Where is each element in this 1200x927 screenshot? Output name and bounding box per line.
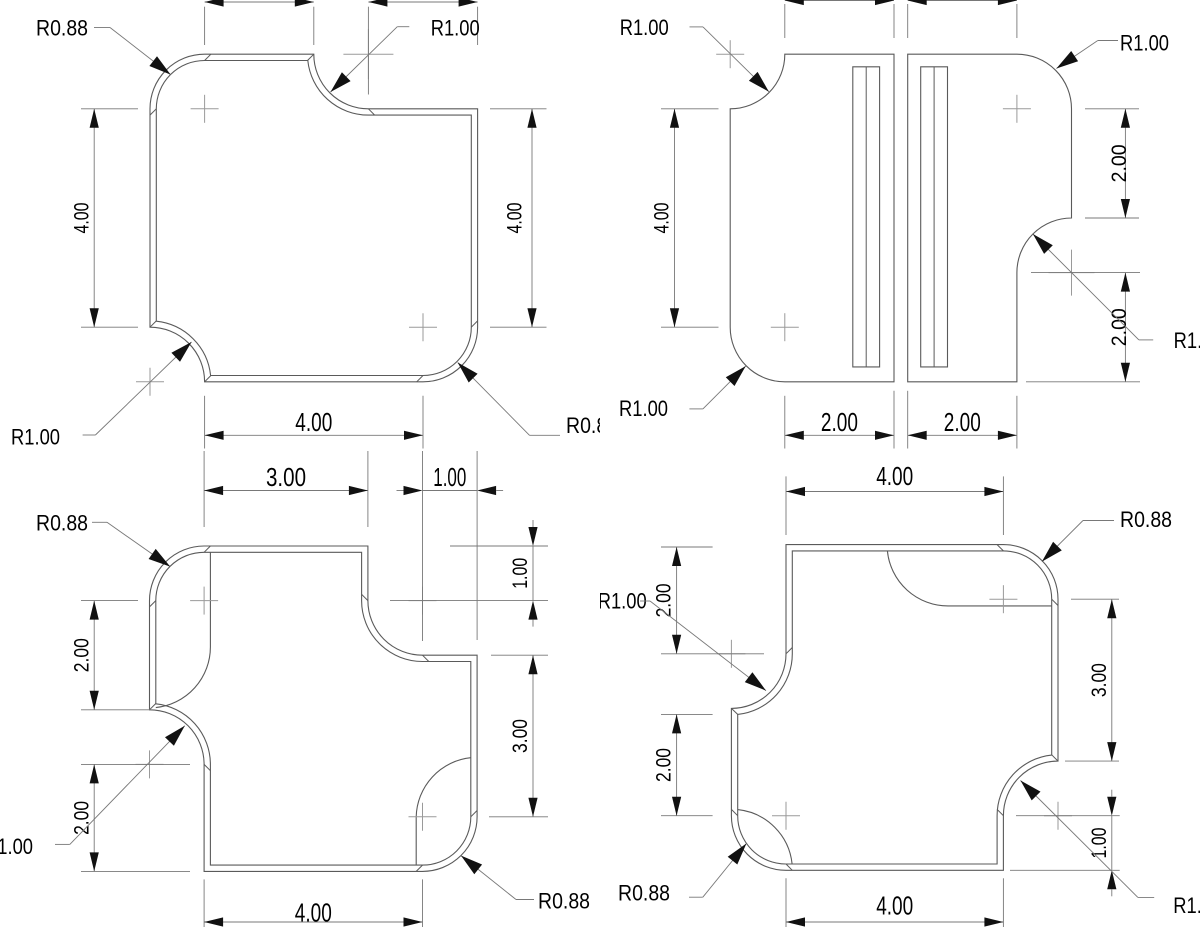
- svg-text:4.00: 4.00: [70, 202, 94, 233]
- svg-text:4.00: 4.00: [876, 891, 913, 921]
- svg-text:4.00: 4.00: [295, 407, 332, 437]
- svg-text:R0.88: R0.88: [36, 16, 88, 41]
- svg-text:2.00: 2.00: [652, 583, 676, 617]
- svg-text:2.00: 2.00: [821, 407, 858, 437]
- svg-text:2.00: 2.00: [1107, 308, 1131, 346]
- svg-text:R1.00: R1.00: [0, 834, 33, 859]
- svg-text:2.00: 2.00: [652, 748, 676, 782]
- svg-text:R1.13: R1.13: [1173, 893, 1200, 918]
- svg-text:2.00: 2.00: [70, 801, 94, 835]
- svg-text:R1.00: R1.00: [619, 396, 668, 421]
- svg-text:R1.00: R1.00: [11, 425, 60, 450]
- svg-text:4.00: 4.00: [876, 461, 913, 491]
- svg-text:R0.88: R0.88: [36, 511, 88, 536]
- svg-text:R0.88: R0.88: [538, 889, 590, 914]
- svg-text:R1.00: R1.00: [1120, 31, 1169, 56]
- svg-text:R0.88: R0.88: [618, 881, 670, 906]
- svg-text:1.00: 1.00: [508, 558, 532, 589]
- svg-text:1.00: 1.00: [433, 462, 466, 492]
- svg-text:3.00: 3.00: [266, 462, 306, 492]
- svg-text:R1.13: R1.13: [1174, 328, 1200, 353]
- svg-text:1.00: 1.00: [1087, 827, 1111, 858]
- svg-text:R0.88: R0.88: [1120, 507, 1172, 532]
- svg-text:3.00: 3.00: [508, 719, 532, 753]
- svg-text:3.00: 3.00: [1087, 663, 1111, 697]
- svg-text:4.00: 4.00: [650, 202, 674, 233]
- svg-text:R1.00: R1.00: [598, 589, 647, 614]
- svg-text:R1.00: R1.00: [620, 15, 669, 40]
- svg-text:2.00: 2.00: [1107, 144, 1131, 182]
- svg-text:R1.00: R1.00: [431, 16, 480, 41]
- svg-text:4.00: 4.00: [295, 898, 332, 927]
- svg-text:4.00: 4.00: [503, 202, 527, 233]
- svg-text:2.00: 2.00: [944, 407, 981, 437]
- svg-text:2.00: 2.00: [70, 638, 94, 672]
